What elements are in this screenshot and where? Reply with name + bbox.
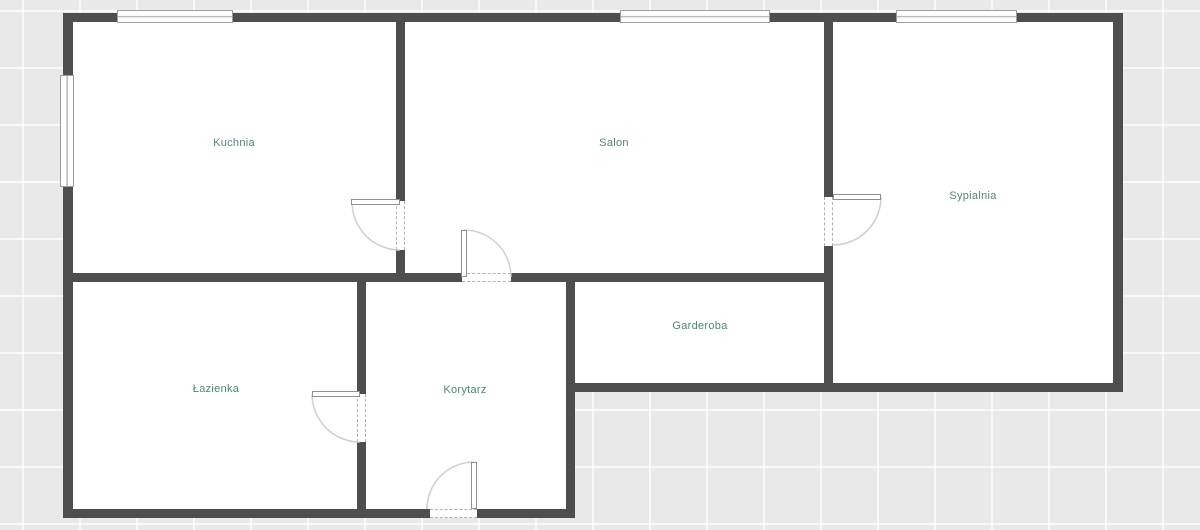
room-label-sypialnia: Sypialnia (949, 190, 996, 202)
floor-plan-canvas: Kuchnia Salon Sypialnia Garderoba Łazien… (0, 0, 1200, 530)
door-opening-sypialnia (824, 197, 833, 246)
door-leaf-kuchnia (351, 199, 400, 205)
door-opening-entrance (430, 509, 477, 518)
window-kuchnia-left (60, 75, 74, 187)
wall-exterior-bottom-right (566, 383, 1123, 392)
wall-middle-horizontal (63, 273, 833, 282)
window-salon-top (620, 10, 770, 23)
wall-exterior-bottom-left (63, 509, 575, 518)
room-label-garderoba: Garderoba (672, 320, 727, 332)
door-opening-salon-korytarz (462, 273, 511, 282)
room-label-lazienka: Łazienka (193, 383, 239, 395)
door-leaf-entrance (471, 462, 477, 509)
wall-korytarz-right (566, 273, 575, 518)
window-kuchnia-top (117, 10, 233, 23)
door-leaf-sypialnia (833, 194, 881, 200)
room-label-korytarz: Korytarz (443, 384, 486, 396)
room-label-kuchnia: Kuchnia (213, 137, 255, 149)
window-sypialnia-top (896, 10, 1017, 23)
door-leaf-salon-korytarz (461, 230, 467, 277)
wall-exterior-right (1113, 13, 1123, 392)
door-opening-lazienka (357, 394, 366, 442)
door-leaf-lazienka (312, 391, 360, 397)
floor-right-section (63, 13, 1123, 392)
room-label-salon: Salon (599, 137, 629, 149)
door-opening-kuchnia (396, 201, 405, 250)
